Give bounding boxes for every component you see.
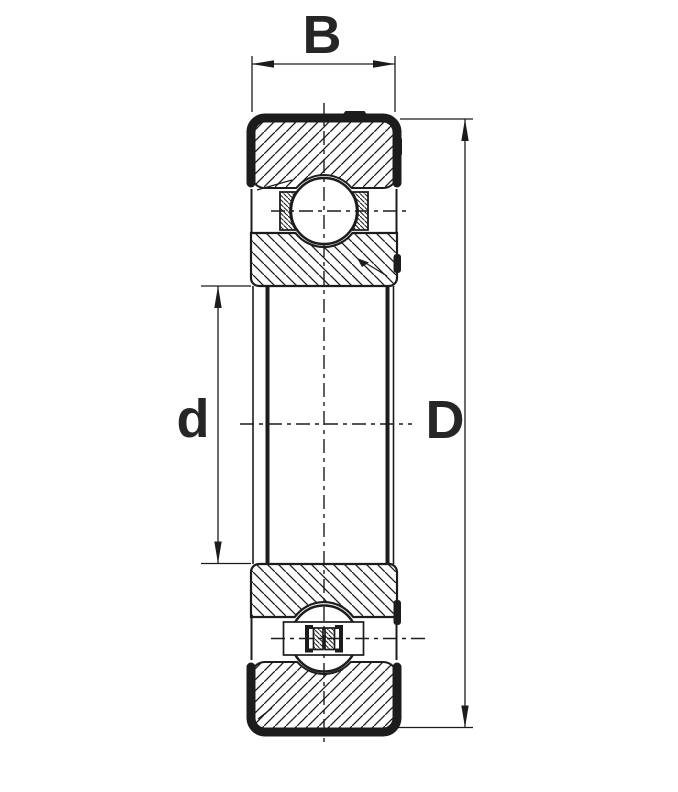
outer-ring-right-mark <box>394 136 403 157</box>
bore-lines <box>253 286 394 564</box>
b-arrow-left <box>252 60 274 68</box>
inner-ring-right-mark <box>394 254 402 273</box>
b-arrow-right <box>373 60 395 68</box>
dimension-width-b: B <box>252 5 395 112</box>
od-arrow-top <box>461 119 468 141</box>
label-bore-d: d <box>177 389 210 449</box>
outer-ring-top-bump <box>340 111 369 118</box>
d-arrow-top <box>214 286 221 308</box>
d-arrow-bottom <box>214 542 221 564</box>
dimension-outer-diameter-d: D <box>388 119 473 728</box>
bearing-cross-section-drawing: B d D <box>0 0 678 792</box>
dimension-bore-d: d <box>177 286 252 564</box>
bearing-drawing-page: B d D <box>0 0 678 792</box>
od-arrow-bottom <box>461 706 468 728</box>
label-outer-diameter-d: D <box>426 390 465 450</box>
label-width-b: B <box>303 5 342 65</box>
